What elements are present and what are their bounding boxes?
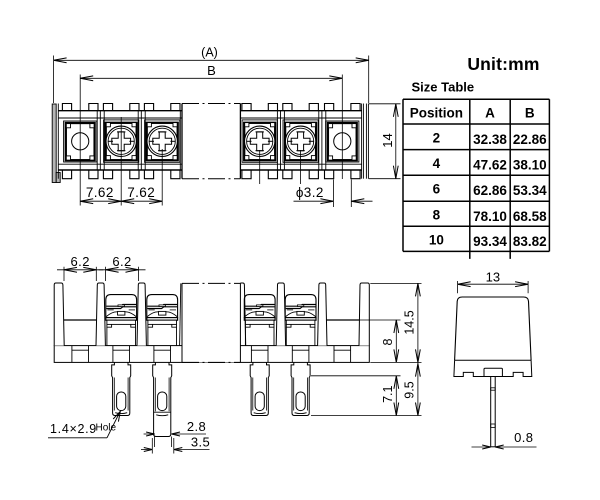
svg-text:62.86: 62.86 xyxy=(473,183,507,198)
svg-text:(A): (A) xyxy=(201,45,218,59)
svg-text:6.2: 6.2 xyxy=(112,254,131,269)
svg-text:2: 2 xyxy=(433,131,441,146)
svg-text:6.2: 6.2 xyxy=(71,254,90,269)
svg-text:7.62: 7.62 xyxy=(127,185,155,200)
svg-text:B: B xyxy=(525,106,535,121)
svg-text:47.62: 47.62 xyxy=(473,158,507,173)
svg-text:53.34: 53.34 xyxy=(513,183,547,198)
svg-text:14: 14 xyxy=(380,133,395,147)
svg-text:A: A xyxy=(485,106,495,121)
svg-text:7.1: 7.1 xyxy=(381,385,395,402)
svg-text:Position: Position xyxy=(410,106,463,121)
svg-text:Hole: Hole xyxy=(96,422,117,433)
svg-text:22.86: 22.86 xyxy=(513,132,547,147)
svg-text:13: 13 xyxy=(486,269,500,284)
svg-text:7.62: 7.62 xyxy=(86,185,114,200)
svg-text:6: 6 xyxy=(433,182,441,197)
svg-text:2.8: 2.8 xyxy=(187,419,206,434)
svg-text:B: B xyxy=(207,63,216,78)
svg-text:93.34: 93.34 xyxy=(473,234,507,249)
svg-text:10: 10 xyxy=(429,233,444,248)
svg-text:Unit:mm: Unit:mm xyxy=(467,54,539,74)
svg-text:78.10: 78.10 xyxy=(473,209,507,224)
svg-text:Size Table: Size Table xyxy=(412,80,475,95)
svg-text:3.5: 3.5 xyxy=(191,434,210,449)
svg-text:ϕ3.2: ϕ3.2 xyxy=(296,185,324,200)
svg-text:83.82: 83.82 xyxy=(513,234,547,249)
svg-text:4: 4 xyxy=(433,156,441,171)
svg-text:8: 8 xyxy=(433,208,441,223)
svg-text:32.38: 32.38 xyxy=(473,132,507,147)
svg-text:0.8: 0.8 xyxy=(514,430,533,445)
svg-text:38.10: 38.10 xyxy=(513,158,547,173)
svg-text:68.58: 68.58 xyxy=(513,209,547,224)
svg-text:14.5: 14.5 xyxy=(402,310,416,334)
svg-text:9.5: 9.5 xyxy=(402,381,416,398)
svg-text:8: 8 xyxy=(381,338,395,345)
svg-text:1.4×2.9: 1.4×2.9 xyxy=(50,422,97,436)
